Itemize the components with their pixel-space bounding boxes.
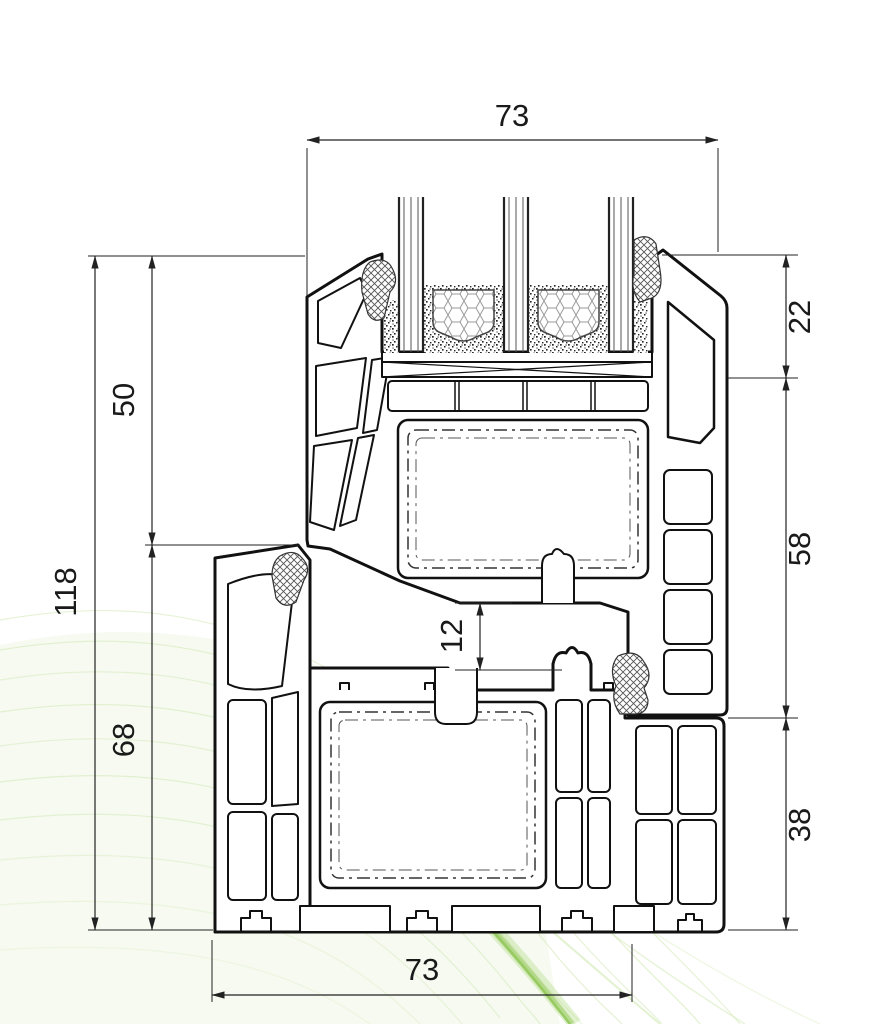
sealant-stipple xyxy=(633,300,648,353)
frame-hardware-groove xyxy=(435,668,477,724)
dim-label-bottom-width: 73 xyxy=(405,952,439,987)
window-profile-cross-section: 73 22 58 38 118 50 68 12 xyxy=(0,0,870,1024)
frame-left-column xyxy=(215,545,310,932)
glass-pane-2 xyxy=(504,197,528,352)
glazing-spacer xyxy=(538,290,599,341)
frame-foot-recess xyxy=(614,906,654,932)
frame-foot-recess xyxy=(300,906,390,932)
dim-label-sash-left-height: 50 xyxy=(106,383,141,417)
setting-block xyxy=(382,352,652,377)
dim-label-top-width: 73 xyxy=(495,98,529,133)
dimension-rebate-gap: 12 xyxy=(434,603,562,670)
dim-label-frame-right-height: 38 xyxy=(782,808,817,842)
dim-label-total-height: 118 xyxy=(48,567,83,616)
sash-profile xyxy=(307,250,727,715)
dim-label-sash-height: 58 xyxy=(782,532,817,566)
dim-label-rebate-gap: 12 xyxy=(434,619,469,653)
dim-label-frame-left-height: 68 xyxy=(106,723,141,757)
glass-pane-3 xyxy=(609,197,633,352)
gasket-frame-right xyxy=(612,653,649,714)
frame-foot-recess xyxy=(452,906,540,932)
glass-pane-1 xyxy=(399,197,423,352)
gasket-bead-right xyxy=(633,237,661,302)
sash-hardware-notch xyxy=(542,549,574,603)
dim-label-glazing-depth: 22 xyxy=(782,300,817,334)
glazing-spacer xyxy=(433,290,494,341)
glazing-unit xyxy=(384,197,648,353)
window-profile-drawing-page: 73 22 58 38 118 50 68 12 xyxy=(0,0,870,1024)
